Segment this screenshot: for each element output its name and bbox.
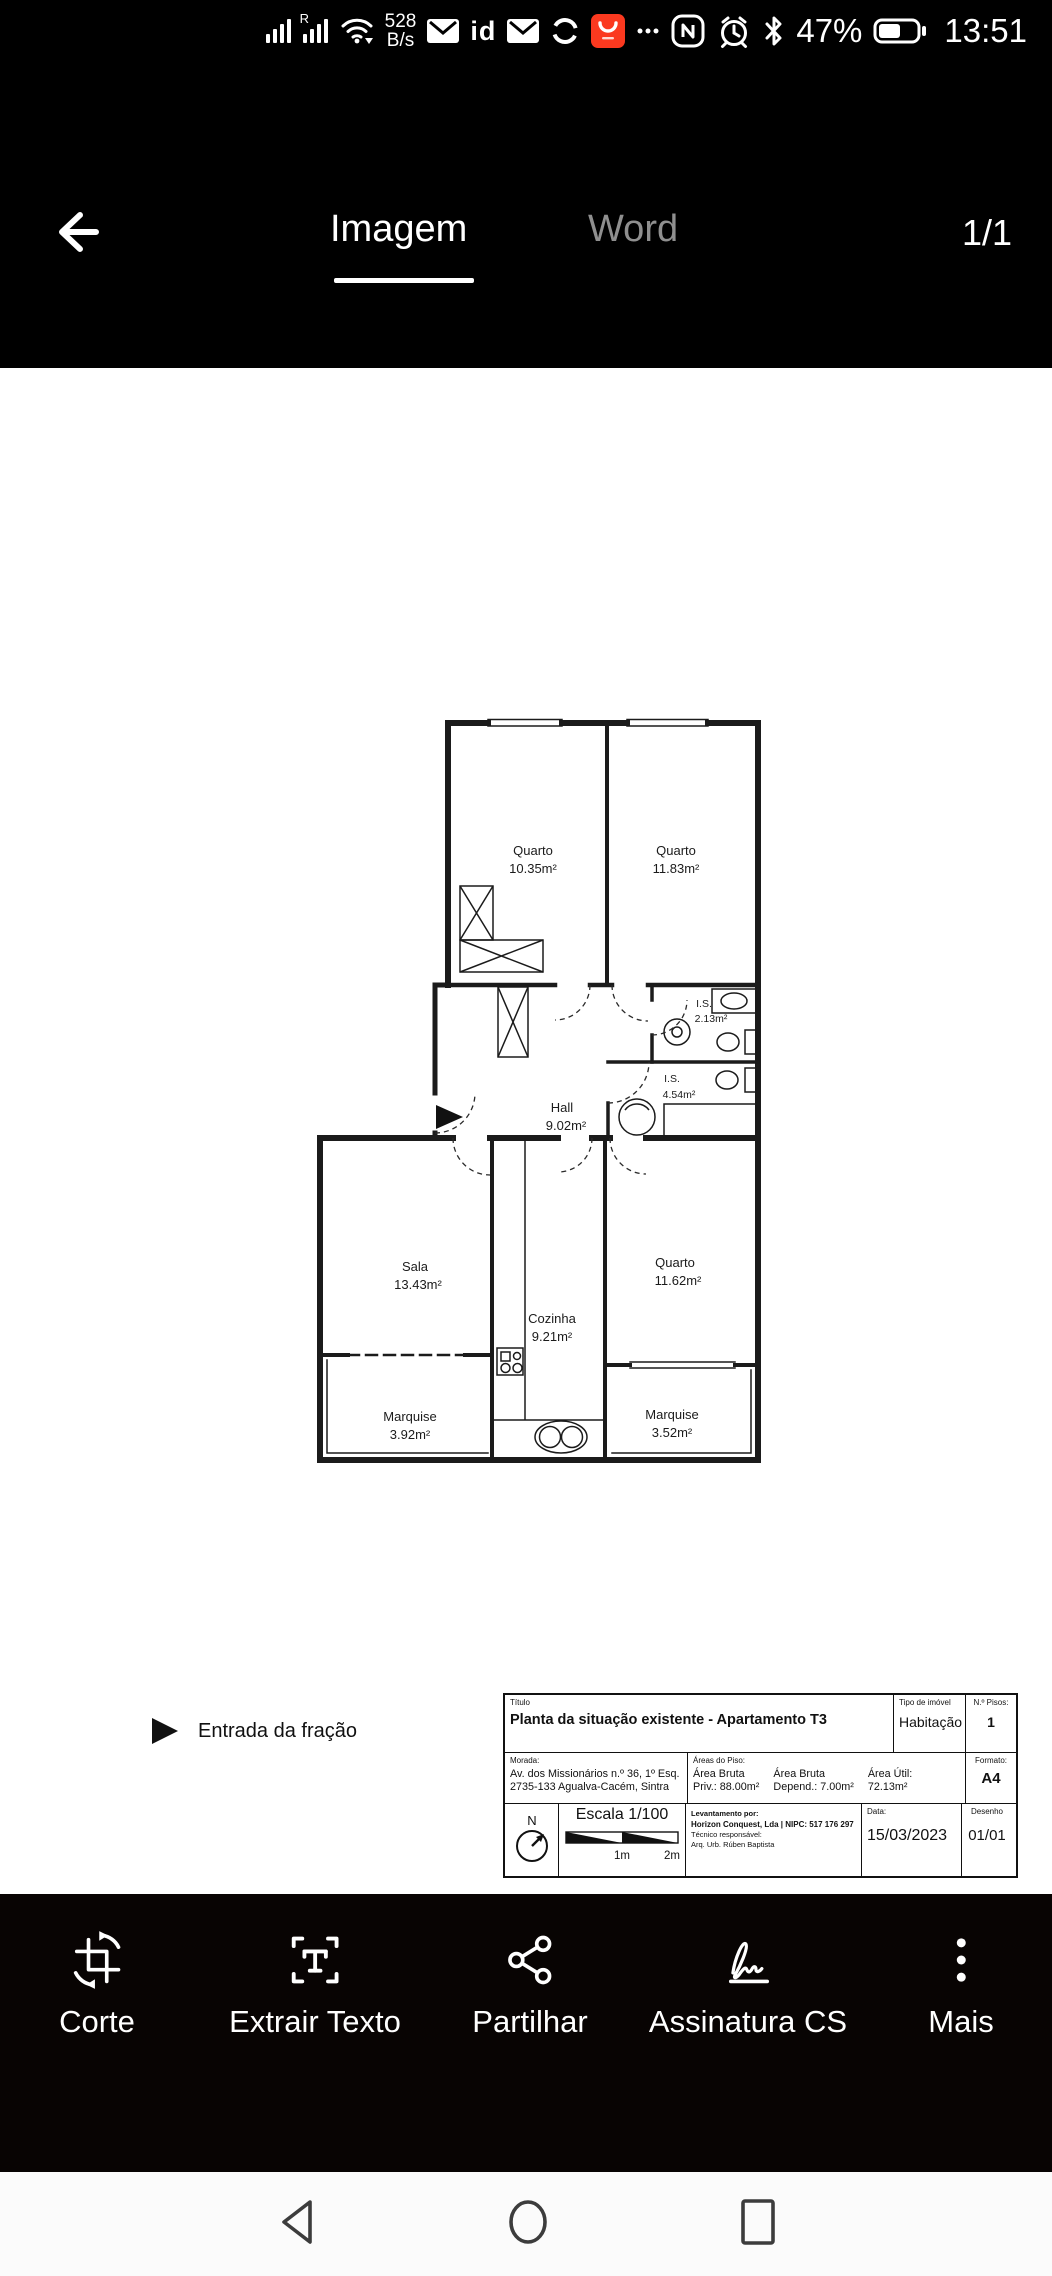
data-value: 15/03/2023	[867, 1827, 956, 1845]
more-button[interactable]: Mais	[928, 1930, 993, 2040]
page-indicator: 1/1	[962, 212, 1012, 254]
morada-label: Morada:	[510, 1756, 682, 1766]
nav-back-icon	[274, 2197, 320, 2247]
room-label: Marquise	[645, 1407, 698, 1422]
room-label: Quarto	[655, 1255, 695, 1270]
formato-label: Formato:	[971, 1756, 1011, 1766]
share-label: Partilhar	[472, 2004, 587, 2040]
titulo-label: Título	[510, 1698, 888, 1708]
signature-icon	[718, 1930, 778, 1990]
mail-2-icon	[507, 19, 539, 43]
room-area: 3.92m²	[390, 1427, 431, 1442]
tecnico-value: Arq. Urb. Rúben Baptista	[691, 1840, 856, 1850]
desenho-value: 01/01	[967, 1827, 1007, 1844]
nav-back-button[interactable]	[274, 2197, 320, 2252]
signal-icon	[266, 17, 292, 45]
formato-value: A4	[971, 1770, 1011, 1787]
extract-text-icon	[285, 1930, 345, 1990]
room-label: Marquise	[383, 1409, 436, 1424]
document-image[interactable]: Quarto 10.35m² Quarto 11.83m² I.S. 2.13m…	[0, 368, 1052, 1894]
battery-percent: 47%	[796, 12, 862, 50]
room-area: 11.83m²	[653, 861, 700, 876]
room-label: Quarto	[513, 843, 553, 858]
notification-overflow-dots	[636, 26, 660, 36]
entrance-arrow-icon	[152, 1718, 178, 1744]
crop-button[interactable]: Corte	[59, 1930, 135, 2040]
scale-label: Escala 1/100	[564, 1806, 680, 1824]
data-label: Data:	[867, 1807, 956, 1817]
scale-cell: Escala 1/100 1m 2m	[559, 1804, 686, 1876]
room-area: 10.35m²	[509, 861, 557, 876]
entrance-legend-label: Entrada da fração	[198, 1720, 357, 1743]
room-area: 9.02m²	[546, 1118, 587, 1133]
tab-word[interactable]: Word	[588, 208, 678, 251]
room-area: 2.13m²	[695, 1013, 728, 1025]
mail-icon	[427, 19, 459, 43]
nav-recents-button[interactable]	[736, 2197, 780, 2252]
scale-1m-label: 1m	[614, 1850, 630, 1862]
nav-home-icon	[504, 2197, 552, 2247]
nfc-icon	[671, 14, 705, 48]
area-util: Área Útil:72.13m²	[868, 1768, 912, 1794]
more-icon	[931, 1930, 991, 1990]
crop-icon	[67, 1930, 127, 1990]
aliexpress-icon	[591, 14, 625, 48]
north-compass: N	[505, 1804, 559, 1876]
desenho-label: Desenho	[967, 1807, 1007, 1817]
nav-home-button[interactable]	[504, 2197, 552, 2252]
tipo-value: Habitação	[899, 1714, 960, 1730]
floorplan-drawing: Quarto 10.35m² Quarto 11.83m² I.S. 2.13m…	[300, 715, 770, 1500]
active-tab-underline	[334, 278, 474, 283]
more-label: Mais	[928, 2004, 993, 2040]
roaming-indicator: R	[300, 11, 309, 26]
pisos-value: 1	[971, 1714, 1011, 1730]
north-label: N	[527, 1813, 536, 1828]
crop-label: Corte	[59, 2004, 135, 2040]
action-toolbar: Corte Extrair Texto Partilhar	[0, 1894, 1052, 2172]
extract-text-button[interactable]: Extrair Texto	[229, 1930, 401, 2040]
back-button[interactable]	[48, 202, 108, 262]
id-app-icon: id	[470, 16, 496, 47]
levantamento-label: Levantamento por:	[691, 1809, 856, 1819]
signature-button[interactable]: Assinatura CS	[649, 1930, 847, 2040]
signature-label: Assinatura CS	[649, 2004, 847, 2040]
signal-2-icon: R	[303, 17, 329, 45]
scale-2m-label: 2m	[664, 1850, 680, 1862]
extract-text-label: Extrair Texto	[229, 2004, 401, 2040]
room-label: Sala	[402, 1259, 429, 1274]
title-block: Título Planta da situação existente - Ap…	[503, 1693, 1018, 1878]
room-area: 13.43m²	[394, 1277, 442, 1292]
morada-line2: 2735-133 Agualva-Cacém, Sintra	[510, 1781, 682, 1794]
network-speed: 528 B/s	[385, 12, 417, 50]
tab-imagem[interactable]: Imagem	[330, 208, 467, 251]
room-area: 9.21m²	[532, 1329, 573, 1344]
nav-recents-icon	[736, 2197, 780, 2247]
share-button[interactable]: Partilhar	[472, 1930, 587, 2040]
room-label: Hall	[551, 1100, 574, 1115]
room-label: Cozinha	[528, 1311, 576, 1326]
morada-line1: Av. dos Missionários n.º 36, 1º Esq.	[510, 1768, 682, 1781]
wifi-icon	[340, 16, 374, 46]
room-area: 11.62m²	[655, 1273, 702, 1288]
share-icon	[500, 1930, 560, 1990]
room-label: I.S.	[696, 998, 712, 1010]
system-navbar	[0, 2172, 1052, 2276]
bluetooth-icon	[763, 14, 785, 48]
tipo-label: Tipo de imóvel	[899, 1698, 960, 1708]
tecnico-label: Técnico responsável:	[691, 1830, 856, 1840]
pisos-label: N.º Pisos:	[971, 1698, 1011, 1708]
status-bar: R 528 B/s id	[0, 0, 1052, 62]
levantamento-value: Horizon Conquest, Lda | NIPC: 517 176 29…	[691, 1819, 856, 1830]
entrance-legend: Entrada da fração	[152, 1718, 357, 1744]
sync-icon	[550, 16, 580, 46]
room-label: I.S.	[664, 1073, 680, 1085]
viewer-header: Imagem Word 1/1	[0, 62, 1052, 368]
alarm-icon	[716, 13, 752, 49]
drawing-title: Planta da situação existente - Apartamen…	[510, 1712, 888, 1728]
area-bruta-priv: Área BrutaPriv.: 88.00m²	[693, 1768, 759, 1794]
room-label: Quarto	[656, 843, 696, 858]
area-bruta-depend: Área BrutaDepend.: 7.00m²	[773, 1768, 853, 1794]
status-time: 13:51	[944, 12, 1027, 50]
room-area: 4.54m²	[663, 1089, 696, 1101]
areas-label: Áreas do Piso:	[693, 1756, 960, 1766]
phone-screen: R 528 B/s id	[0, 0, 1052, 2276]
battery-icon	[873, 15, 927, 47]
room-area: 3.52m²	[652, 1425, 693, 1440]
entrance-arrow	[436, 1105, 463, 1129]
